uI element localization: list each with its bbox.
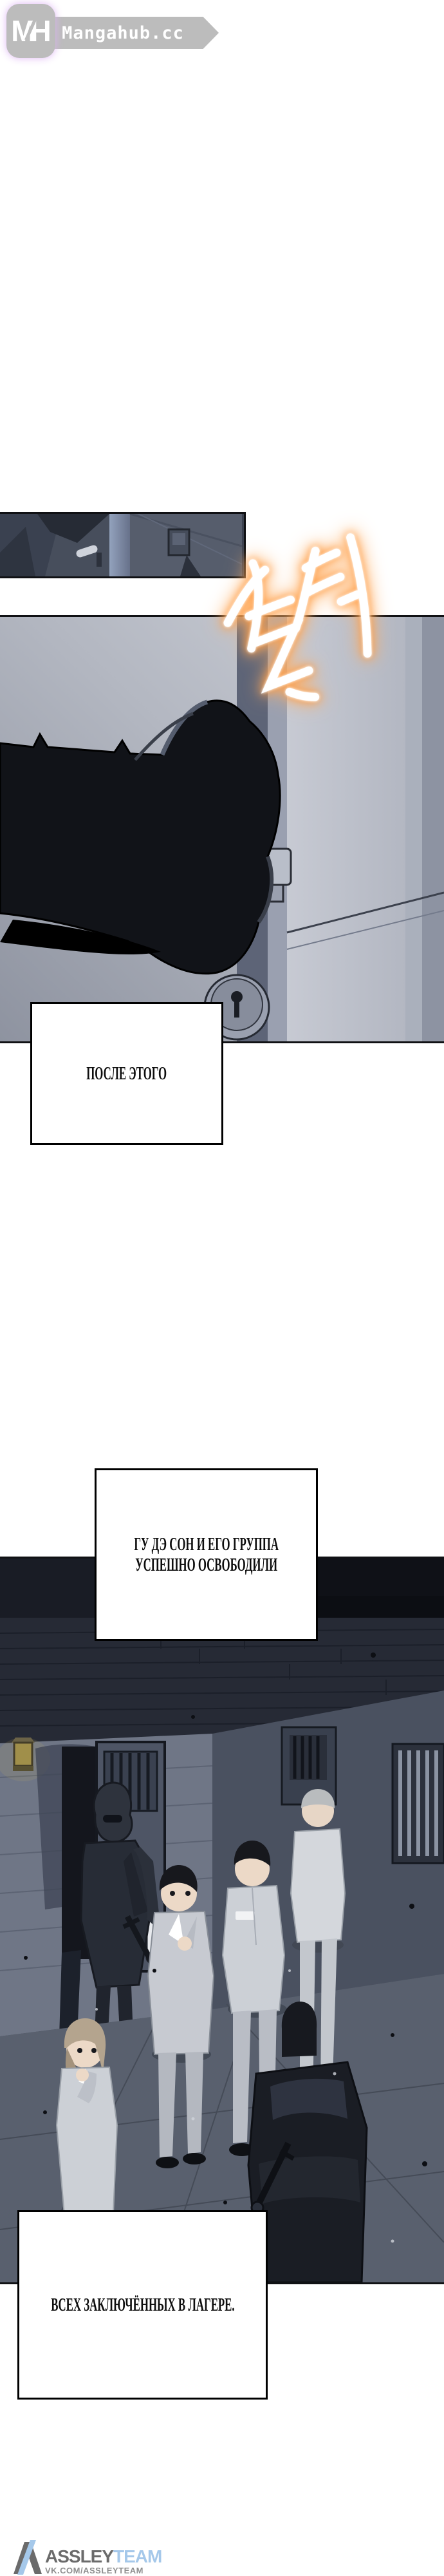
team-logo: ASSLEYTEAM VK.COM/ASSLEYTEAM bbox=[13, 2539, 180, 2575]
panel-doors-art bbox=[0, 514, 242, 576]
sfx-clack bbox=[205, 530, 399, 721]
site-logo[interactable]: Mangahub.cc MH bbox=[5, 4, 217, 59]
caption-box-2: ГУ ДЭ СОН И ЕГО ГРУППА УСПЕШНО ОСВОБОДИЛ… bbox=[95, 1468, 318, 1641]
site-monogram-icon: MH bbox=[6, 4, 55, 58]
caption-2-line2: УСПЕШНО ОСВОБОДИЛИ bbox=[134, 1555, 279, 1575]
site-name: Mangahub.cc bbox=[62, 23, 201, 43]
caption-3-text: ВСЕХ ЗАКЛЮЧЁННЫХ В ЛАГЕРЕ. bbox=[51, 2295, 234, 2315]
team-a-icon bbox=[13, 2540, 42, 2575]
team-name: ASSLEYTEAM bbox=[45, 2548, 162, 2566]
caption-box-3: ВСЕХ ЗАКЛЮЧЁННЫХ В ЛАГЕРЕ. bbox=[17, 2210, 268, 2400]
team-name-accent: TEAM bbox=[113, 2546, 162, 2566]
team-name-primary: ASSLEY bbox=[45, 2546, 113, 2566]
sfx-clack-strokes bbox=[205, 530, 399, 721]
manga-panel-corridor bbox=[0, 1557, 444, 2284]
reader-page: Mangahub.cc MH bbox=[0, 0, 444, 2576]
caption-2-line1: ГУ ДЭ СОН И ЕГО ГРУППА bbox=[134, 1534, 279, 1555]
panel-corridor-art bbox=[0, 1558, 444, 2282]
team-vk-url[interactable]: VK.COM/ASSLEYTEAM bbox=[45, 2566, 162, 2575]
caption-box-1: ПОСЛЕ ЭТОГО bbox=[30, 1002, 223, 1145]
caption-1-text: ПОСЛЕ ЭТОГО bbox=[87, 1063, 167, 1084]
site-name-banner: Mangahub.cc bbox=[44, 17, 219, 49]
caption-2-text: ГУ ДЭ СОН И ЕГО ГРУППА УСПЕШНО ОСВОБОДИЛ… bbox=[134, 1534, 279, 1576]
